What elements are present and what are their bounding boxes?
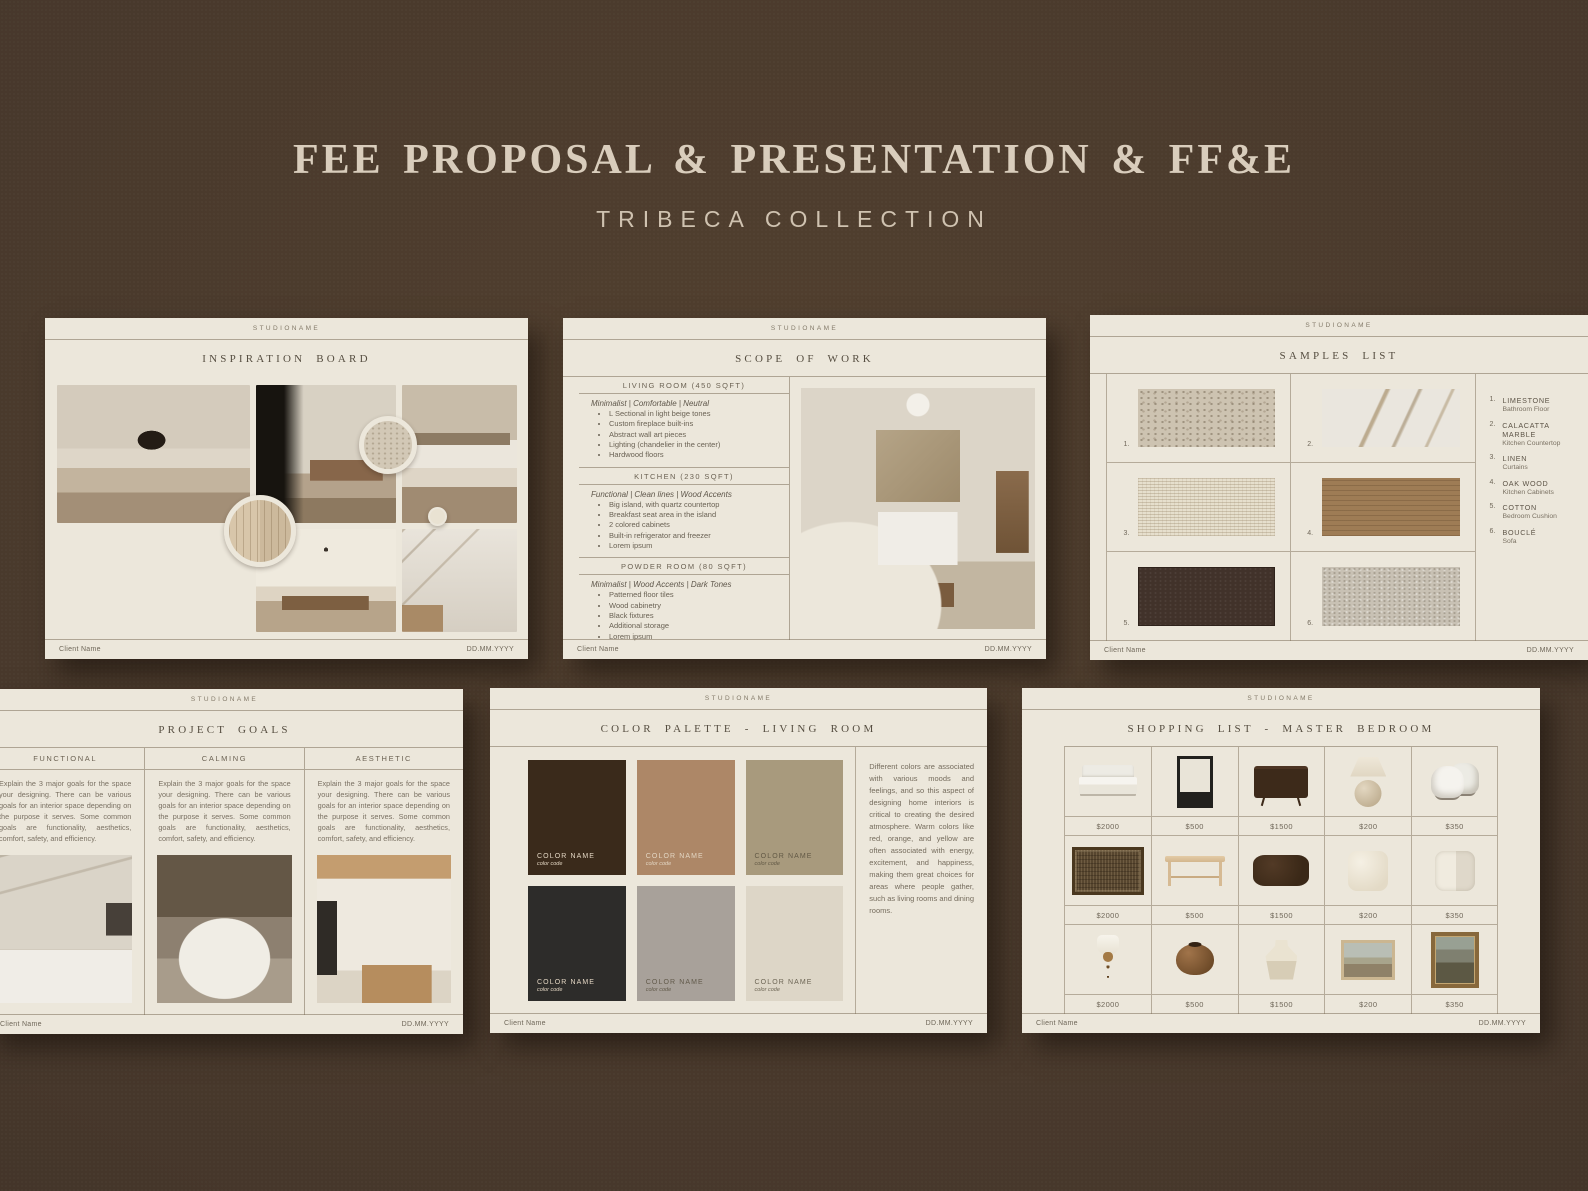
product-cell xyxy=(1238,747,1325,816)
product-wall-sconce xyxy=(1096,935,1120,985)
legend-text: LINEN Curtains xyxy=(1503,454,1528,471)
product-dresser xyxy=(1254,766,1308,798)
color-code: color code xyxy=(537,987,617,993)
color-name: COLOR NAME xyxy=(537,979,617,986)
product-table-lamp xyxy=(1347,757,1389,807)
photo-living-room xyxy=(57,385,250,523)
scope-section-kitchen: KITCHEN (230 SQFT) Functional | Clean li… xyxy=(579,467,789,552)
date-placeholder: DD.MM.YYYY xyxy=(402,1021,449,1028)
sample-swatch-boucle xyxy=(1322,567,1460,626)
slide-color-palette: STUDIONAME COLOR PALETTE - LIVING ROOM C… xyxy=(490,688,987,1033)
palette-description: Different colors are associated with var… xyxy=(855,747,987,1014)
price-label: $350 xyxy=(1411,994,1498,1014)
slide-title-goals: PROJECT GOALS xyxy=(0,711,463,748)
product-throw-pillow xyxy=(1348,851,1388,891)
color-swatch-gray: COLOR NAME color code xyxy=(637,886,735,1001)
legend-use: Bedroom Cushion xyxy=(1503,513,1557,520)
bullet-item: Built-in refrigerator and freezer xyxy=(609,531,785,541)
slide-samples-list: STUDIONAME SAMPLES LIST 1. 2. 3. 4. xyxy=(1090,315,1588,660)
section-heading: KITCHEN (230 SQFT) xyxy=(579,467,789,485)
palette-content: COLOR NAME color code COLOR NAME color c… xyxy=(490,746,987,1014)
product-cell xyxy=(1324,836,1411,905)
samples-legend: 1. LIMESTONE Bathroom Floor 2. CALACATTA… xyxy=(1475,374,1588,641)
client-name: Client Name xyxy=(1036,1020,1078,1027)
price-label: $200 xyxy=(1324,816,1411,836)
legend-item: 5. COTTON Bedroom Cushion xyxy=(1490,503,1584,520)
legend-number: 4. xyxy=(1490,479,1503,496)
sample-cell-linen: 3. xyxy=(1107,463,1291,552)
product-bed xyxy=(1079,765,1137,799)
product-cell xyxy=(1151,747,1238,816)
studio-name: STUDIONAME xyxy=(563,318,1046,340)
color-name: COLOR NAME xyxy=(537,853,617,860)
scope-text-column: LIVING ROOM (450 SQFT) Minimalist | Comf… xyxy=(563,377,790,640)
scope-section-powder-room: POWDER ROOM (80 SQFT) Minimalist | Wood … xyxy=(579,557,789,642)
section-heading: LIVING ROOM (450 SQFT) xyxy=(579,377,789,394)
goal-description: Explain the 3 major goals for the space … xyxy=(0,770,144,849)
goal-heading: AESTHETIC xyxy=(305,748,463,770)
bullet-item: Big island, with quartz countertop xyxy=(609,500,785,510)
slide-project-goals: STUDIONAME PROJECT GOALS FUNCTIONAL Expl… xyxy=(0,689,463,1034)
goal-heading: CALMING xyxy=(145,748,303,770)
bullet-item: Additional storage xyxy=(609,621,785,631)
studio-name: STUDIONAME xyxy=(0,689,463,711)
slide-title-inspiration: INSPIRATION BOARD xyxy=(45,340,528,377)
material-circle-cream xyxy=(428,507,447,526)
price-label: $200 xyxy=(1324,905,1411,925)
section-style-line: Functional | Clean lines | Wood Accents xyxy=(591,490,789,499)
inspiration-collage xyxy=(45,376,528,640)
sample-cell-limestone: 1. xyxy=(1107,374,1291,463)
legend-text: CALACATTA MARBLE Kitchen Countertop xyxy=(1502,421,1584,447)
bullet-item: Lorem ipsum xyxy=(609,541,785,551)
legend-item: 6. BOUCLÉ Sofa xyxy=(1490,528,1584,545)
client-name: Client Name xyxy=(0,1021,42,1028)
goals-content: FUNCTIONAL Explain the 3 major goals for… xyxy=(0,747,463,1015)
legend-text: COTTON Bedroom Cushion xyxy=(1503,503,1557,520)
legend-material: BOUCLÉ xyxy=(1503,528,1537,537)
section-bullet-list: L Sectional in light beige tones Custom … xyxy=(579,409,789,461)
sample-number: 6. xyxy=(1307,620,1313,627)
product-framed-landscape-art xyxy=(1341,940,1395,980)
color-name: COLOR NAME xyxy=(646,979,726,986)
studio-name: STUDIONAME xyxy=(490,688,987,710)
date-placeholder: DD.MM.YYYY xyxy=(1527,647,1574,654)
slide-inspiration-board: STUDIONAME INSPIRATION BOARD Client Name… xyxy=(45,318,528,659)
sample-swatch-limestone xyxy=(1138,389,1275,447)
legend-material: LIMESTONE xyxy=(1503,396,1551,405)
poster-canvas: FEE PROPOSAL & PRESENTATION & FF&E TRIBE… xyxy=(0,0,1588,1191)
date-placeholder: DD.MM.YYYY xyxy=(926,1020,973,1027)
slide-footer: Client Name DD.MM.YYYY xyxy=(563,639,1046,659)
legend-number: 6. xyxy=(1490,528,1503,545)
legend-number: 5. xyxy=(1490,503,1503,520)
price-label: $200 xyxy=(1324,994,1411,1014)
color-swatch-dark-brown: COLOR NAME color code xyxy=(528,760,626,875)
color-code: color code xyxy=(755,861,835,867)
product-cell xyxy=(1064,747,1151,816)
goal-column-aesthetic: AESTHETIC Explain the 3 major goals for … xyxy=(305,748,463,1015)
poster-title: FEE PROPOSAL & PRESENTATION & FF&E xyxy=(0,136,1588,184)
product-round-vase xyxy=(1176,944,1214,975)
price-label: $2000 xyxy=(1064,905,1151,925)
product-bench xyxy=(1165,856,1225,886)
studio-name: STUDIONAME xyxy=(1022,688,1540,710)
material-circle-limestone xyxy=(359,416,417,474)
goal-description: Explain the 3 major goals for the space … xyxy=(145,770,303,849)
product-cell xyxy=(1151,925,1238,994)
sample-swatch-cotton xyxy=(1138,567,1275,626)
goal-description: Explain the 3 major goals for the space … xyxy=(305,770,463,849)
slide-footer: Client Name DD.MM.YYYY xyxy=(0,1014,463,1034)
legend-material: OAK WOOD xyxy=(1503,479,1554,488)
price-label: $1500 xyxy=(1238,994,1325,1014)
legend-use: Kitchen Cabinets xyxy=(1503,489,1554,496)
color-swatch-cream: COLOR NAME color code xyxy=(746,886,844,1001)
bullet-item: Lighting (chandelier in the center) xyxy=(609,440,785,450)
price-label: $500 xyxy=(1151,905,1238,925)
scope-photo-frame xyxy=(790,377,1046,640)
product-accent-chair xyxy=(1431,763,1479,801)
poster-header: FEE PROPOSAL & PRESENTATION & FF&E TRIBE… xyxy=(0,136,1588,233)
legend-number: 2. xyxy=(1490,421,1503,447)
palette-grid: COLOR NAME color code COLOR NAME color c… xyxy=(490,747,855,1014)
sample-number: 5. xyxy=(1123,620,1129,627)
legend-text: OAK WOOD Kitchen Cabinets xyxy=(1503,479,1554,496)
price-label: $500 xyxy=(1151,994,1238,1014)
samples-grid: 1. 2. 3. 4. 5. xyxy=(1106,374,1475,641)
product-patchwork-pillow xyxy=(1435,851,1475,891)
section-bullet-list: Big island, with quartz countertop Break… xyxy=(579,500,789,552)
bullet-item: Breakfast seat area in the island xyxy=(609,510,785,520)
bullet-item: L Sectional in light beige tones xyxy=(609,409,785,419)
sample-number: 3. xyxy=(1123,530,1129,537)
sample-number: 2. xyxy=(1307,441,1313,448)
bullet-item: 2 colored cabinets xyxy=(609,520,785,530)
product-cell xyxy=(1064,925,1151,994)
photo-wood-table-detail xyxy=(57,529,250,632)
client-name: Client Name xyxy=(59,646,101,653)
section-bullet-list: Patterned floor tiles Wood cabinetry Bla… xyxy=(579,590,789,642)
legend-number: 1. xyxy=(1490,396,1503,413)
slide-title-shopping: SHOPPING LIST - MASTER BEDROOM xyxy=(1022,710,1540,747)
legend-item: 2. CALACATTA MARBLE Kitchen Countertop xyxy=(1490,421,1584,447)
product-cell xyxy=(1411,836,1498,905)
sample-number: 1. xyxy=(1123,441,1129,448)
photo-curved-sofa xyxy=(157,855,291,1003)
bullet-item: Custom fireplace built-ins xyxy=(609,419,785,429)
slide-scope-of-work: STUDIONAME SCOPE OF WORK LIVING ROOM (45… xyxy=(563,318,1046,659)
slide-title-palette: COLOR PALETTE - LIVING ROOM xyxy=(490,710,987,747)
legend-material: CALACATTA MARBLE xyxy=(1502,421,1584,439)
slide-footer: Client Name DD.MM.YYYY xyxy=(1022,1013,1540,1033)
product-nightstand xyxy=(1177,756,1213,808)
legend-use: Bathroom Floor xyxy=(1503,406,1551,413)
price-label: $2000 xyxy=(1064,816,1151,836)
legend-use: Curtains xyxy=(1503,464,1528,471)
photo-kitchen-island xyxy=(0,855,132,1003)
sample-cell-oak-wood: 4. xyxy=(1291,463,1475,552)
section-style-line: Minimalist | Wood Accents | Dark Tones xyxy=(591,580,789,589)
legend-item: 1. LIMESTONE Bathroom Floor xyxy=(1490,396,1584,413)
sample-swatch-linen xyxy=(1138,478,1275,536)
sample-cell-cotton: 5. xyxy=(1107,552,1291,641)
legend-use: Sofa xyxy=(1503,538,1537,545)
product-cell xyxy=(1324,925,1411,994)
shopping-grid: $2000 $500 $1500 $200 $350 $2000 $500 $1… xyxy=(1064,746,1498,1014)
client-name: Client Name xyxy=(577,646,619,653)
sample-cell-calacatta-marble: 2. xyxy=(1291,374,1475,463)
date-placeholder: DD.MM.YYYY xyxy=(1479,1020,1526,1027)
product-framed-vintage-art xyxy=(1431,932,1479,988)
price-label: $350 xyxy=(1411,816,1498,836)
photo-living-room-fireplace xyxy=(801,388,1035,629)
goal-heading: FUNCTIONAL xyxy=(0,748,144,770)
goal-column-functional: FUNCTIONAL Explain the 3 major goals for… xyxy=(0,748,145,1015)
client-name: Client Name xyxy=(504,1020,546,1027)
sample-cell-boucle: 6. xyxy=(1291,552,1475,641)
color-swatch-camel: COLOR NAME color code xyxy=(637,760,735,875)
price-label: $350 xyxy=(1411,905,1498,925)
bullet-item: Black fixtures xyxy=(609,611,785,621)
legend-number: 3. xyxy=(1490,454,1503,471)
scope-content: LIVING ROOM (450 SQFT) Minimalist | Comf… xyxy=(563,376,1046,640)
slide-footer: Client Name DD.MM.YYYY xyxy=(490,1013,987,1033)
studio-name: STUDIONAME xyxy=(45,318,528,340)
product-cell xyxy=(1411,747,1498,816)
bullet-item: Hardwood floors xyxy=(609,450,785,460)
slide-title-scope: SCOPE OF WORK xyxy=(563,340,1046,377)
product-cell xyxy=(1324,747,1411,816)
color-swatch-charcoal: COLOR NAME color code xyxy=(528,886,626,1001)
price-label: $500 xyxy=(1151,816,1238,836)
product-cell xyxy=(1064,836,1151,905)
goal-column-calming: CALMING Explain the 3 major goals for th… xyxy=(145,748,304,1015)
photo-marble-kitchen xyxy=(402,529,517,632)
legend-material: COTTON xyxy=(1503,503,1557,512)
client-name: Client Name xyxy=(1104,647,1146,654)
section-style-line: Minimalist | Comfortable | Neutral xyxy=(591,399,789,408)
color-code: color code xyxy=(537,861,617,867)
date-placeholder: DD.MM.YYYY xyxy=(467,646,514,653)
price-label: $1500 xyxy=(1238,816,1325,836)
section-heading: POWDER ROOM (80 SQFT) xyxy=(579,557,789,575)
sample-swatch-calacatta-marble xyxy=(1322,389,1460,447)
color-code: color code xyxy=(755,987,835,993)
price-label: $2000 xyxy=(1064,994,1151,1014)
product-cell xyxy=(1151,836,1238,905)
color-code: color code xyxy=(646,861,726,867)
scope-section-living-room: LIVING ROOM (450 SQFT) Minimalist | Comf… xyxy=(579,377,789,461)
date-placeholder: DD.MM.YYYY xyxy=(985,646,1032,653)
product-rug xyxy=(1072,847,1144,895)
price-label: $1500 xyxy=(1238,905,1325,925)
product-ceramic-vase xyxy=(1265,940,1297,980)
legend-text: LIMESTONE Bathroom Floor xyxy=(1503,396,1551,413)
color-name: COLOR NAME xyxy=(646,853,726,860)
legend-use: Kitchen Countertop xyxy=(1502,440,1584,447)
slide-footer: Client Name DD.MM.YYYY xyxy=(1090,640,1588,660)
legend-item: 4. OAK WOOD Kitchen Cabinets xyxy=(1490,479,1584,496)
slide-footer: Client Name DD.MM.YYYY xyxy=(45,639,528,659)
poster-subtitle: TRIBECA COLLECTION xyxy=(0,206,1588,233)
legend-text: BOUCLÉ Sofa xyxy=(1503,528,1537,545)
legend-material: LINEN xyxy=(1503,454,1528,463)
bullet-item: Abstract wall art pieces xyxy=(609,430,785,440)
studio-name: STUDIONAME xyxy=(1090,315,1588,337)
photo-console-vases xyxy=(317,855,451,1003)
color-swatch-khaki: COLOR NAME color code xyxy=(746,760,844,875)
samples-content: 1. 2. 3. 4. 5. xyxy=(1090,373,1588,641)
slide-shopping-list: STUDIONAME SHOPPING LIST - MASTER BEDROO… xyxy=(1022,688,1540,1033)
color-code: color code xyxy=(646,987,726,993)
product-cell xyxy=(1238,836,1325,905)
sample-swatch-oak-wood xyxy=(1322,478,1460,536)
product-cell xyxy=(1411,925,1498,994)
color-name: COLOR NAME xyxy=(755,853,835,860)
legend-item: 3. LINEN Curtains xyxy=(1490,454,1584,471)
product-cell xyxy=(1238,925,1325,994)
slide-title-samples: SAMPLES LIST xyxy=(1090,337,1588,374)
color-name: COLOR NAME xyxy=(755,979,835,986)
bullet-item: Wood cabinetry xyxy=(609,601,785,611)
sample-number: 4. xyxy=(1307,530,1313,537)
photo-bedroom xyxy=(402,385,517,523)
product-lumbar-pillow xyxy=(1253,855,1309,886)
bullet-item: Patterned floor tiles xyxy=(609,590,785,600)
